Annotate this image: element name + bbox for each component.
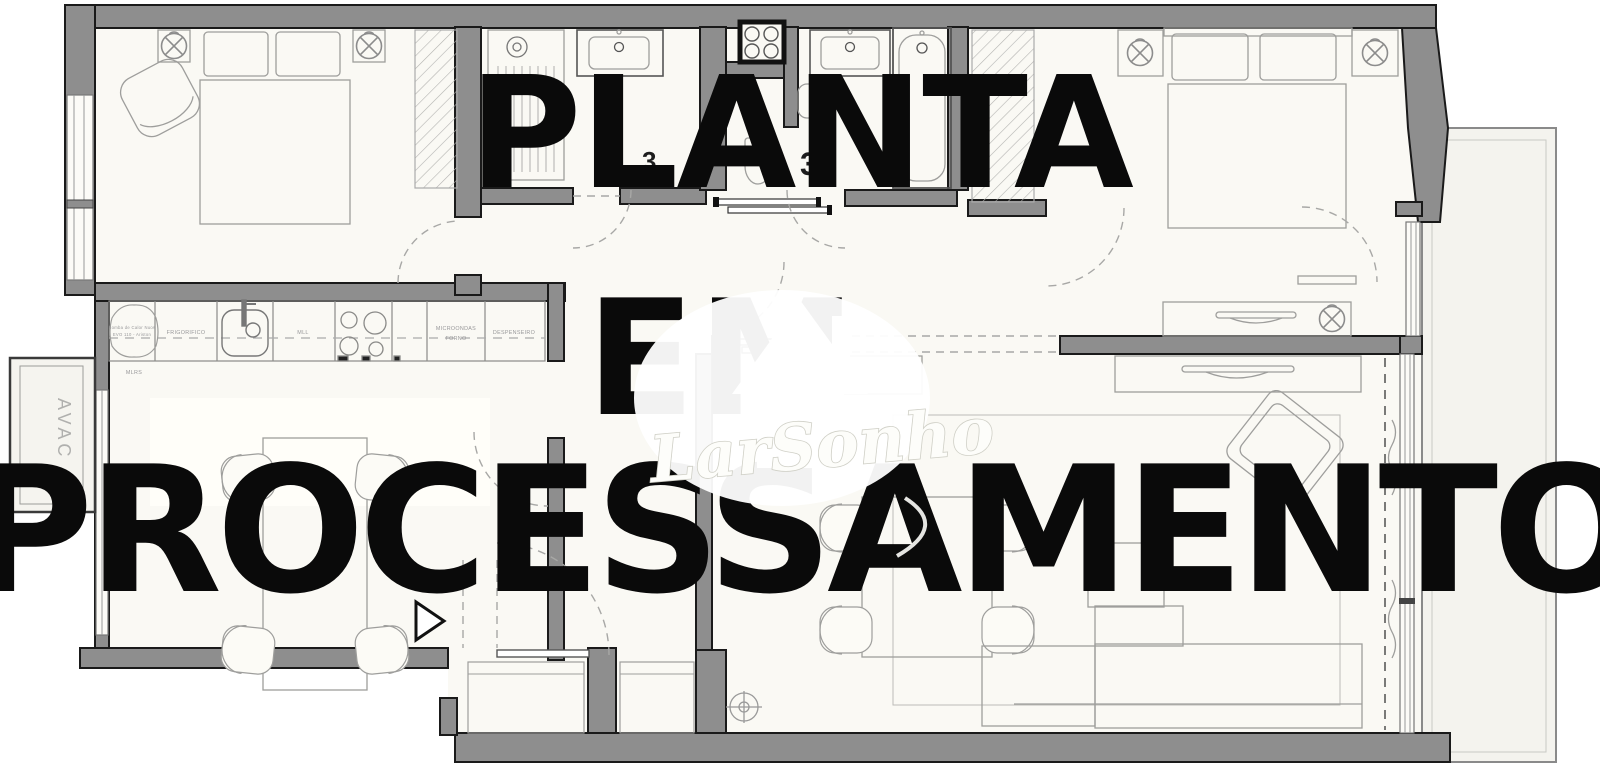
- label-heat-pump-2: EVO 110 - Ariston: [113, 332, 152, 337]
- watermark-line-3: PROCESSAMENTO: [0, 444, 1600, 619]
- entrance-door-leaf: [497, 650, 589, 657]
- bedroom1-window: [67, 95, 93, 280]
- label-dishwasher: MLL: [297, 330, 308, 336]
- label-heat-pump-1: Bomba de Calor Nuos: [109, 325, 156, 330]
- bedroom2-balcony-door: [1406, 222, 1420, 336]
- label-microwave: MICROONDAS: [436, 326, 476, 332]
- watermark-line-1: PLANTA: [468, 56, 1132, 211]
- label-fridge: FRIGORIFICO: [167, 330, 206, 336]
- watermark-line-2: EM: [586, 279, 859, 439]
- label-laundry: MLRS: [126, 370, 142, 376]
- wardrobe-hatch: [415, 30, 457, 188]
- floor-plan-screenshot: AVAC: [0, 0, 1600, 778]
- label-oven: FORNO: [446, 336, 467, 342]
- label-pantry: DESPENSEIRO: [493, 330, 535, 336]
